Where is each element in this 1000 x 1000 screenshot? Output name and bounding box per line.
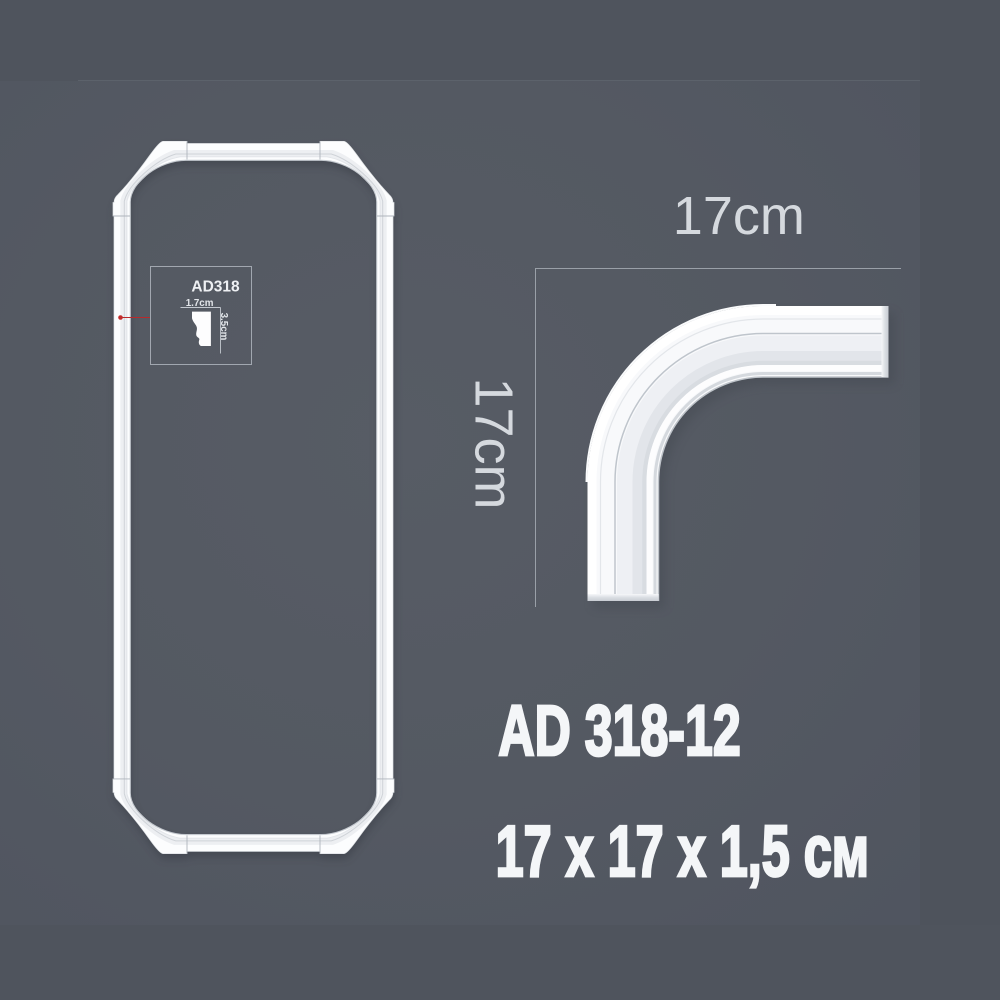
svg-text:AD 318-12: AD 318-12 xyxy=(498,691,740,771)
svg-text:AD318: AD318 xyxy=(191,278,240,295)
svg-text:17 x 17 x 1,5 см: 17 x 17 x 1,5 см xyxy=(496,812,869,892)
svg-text:17cm: 17cm xyxy=(673,186,805,246)
svg-text:3.5cm: 3.5cm xyxy=(218,313,229,341)
svg-text:17cm: 17cm xyxy=(464,377,524,509)
